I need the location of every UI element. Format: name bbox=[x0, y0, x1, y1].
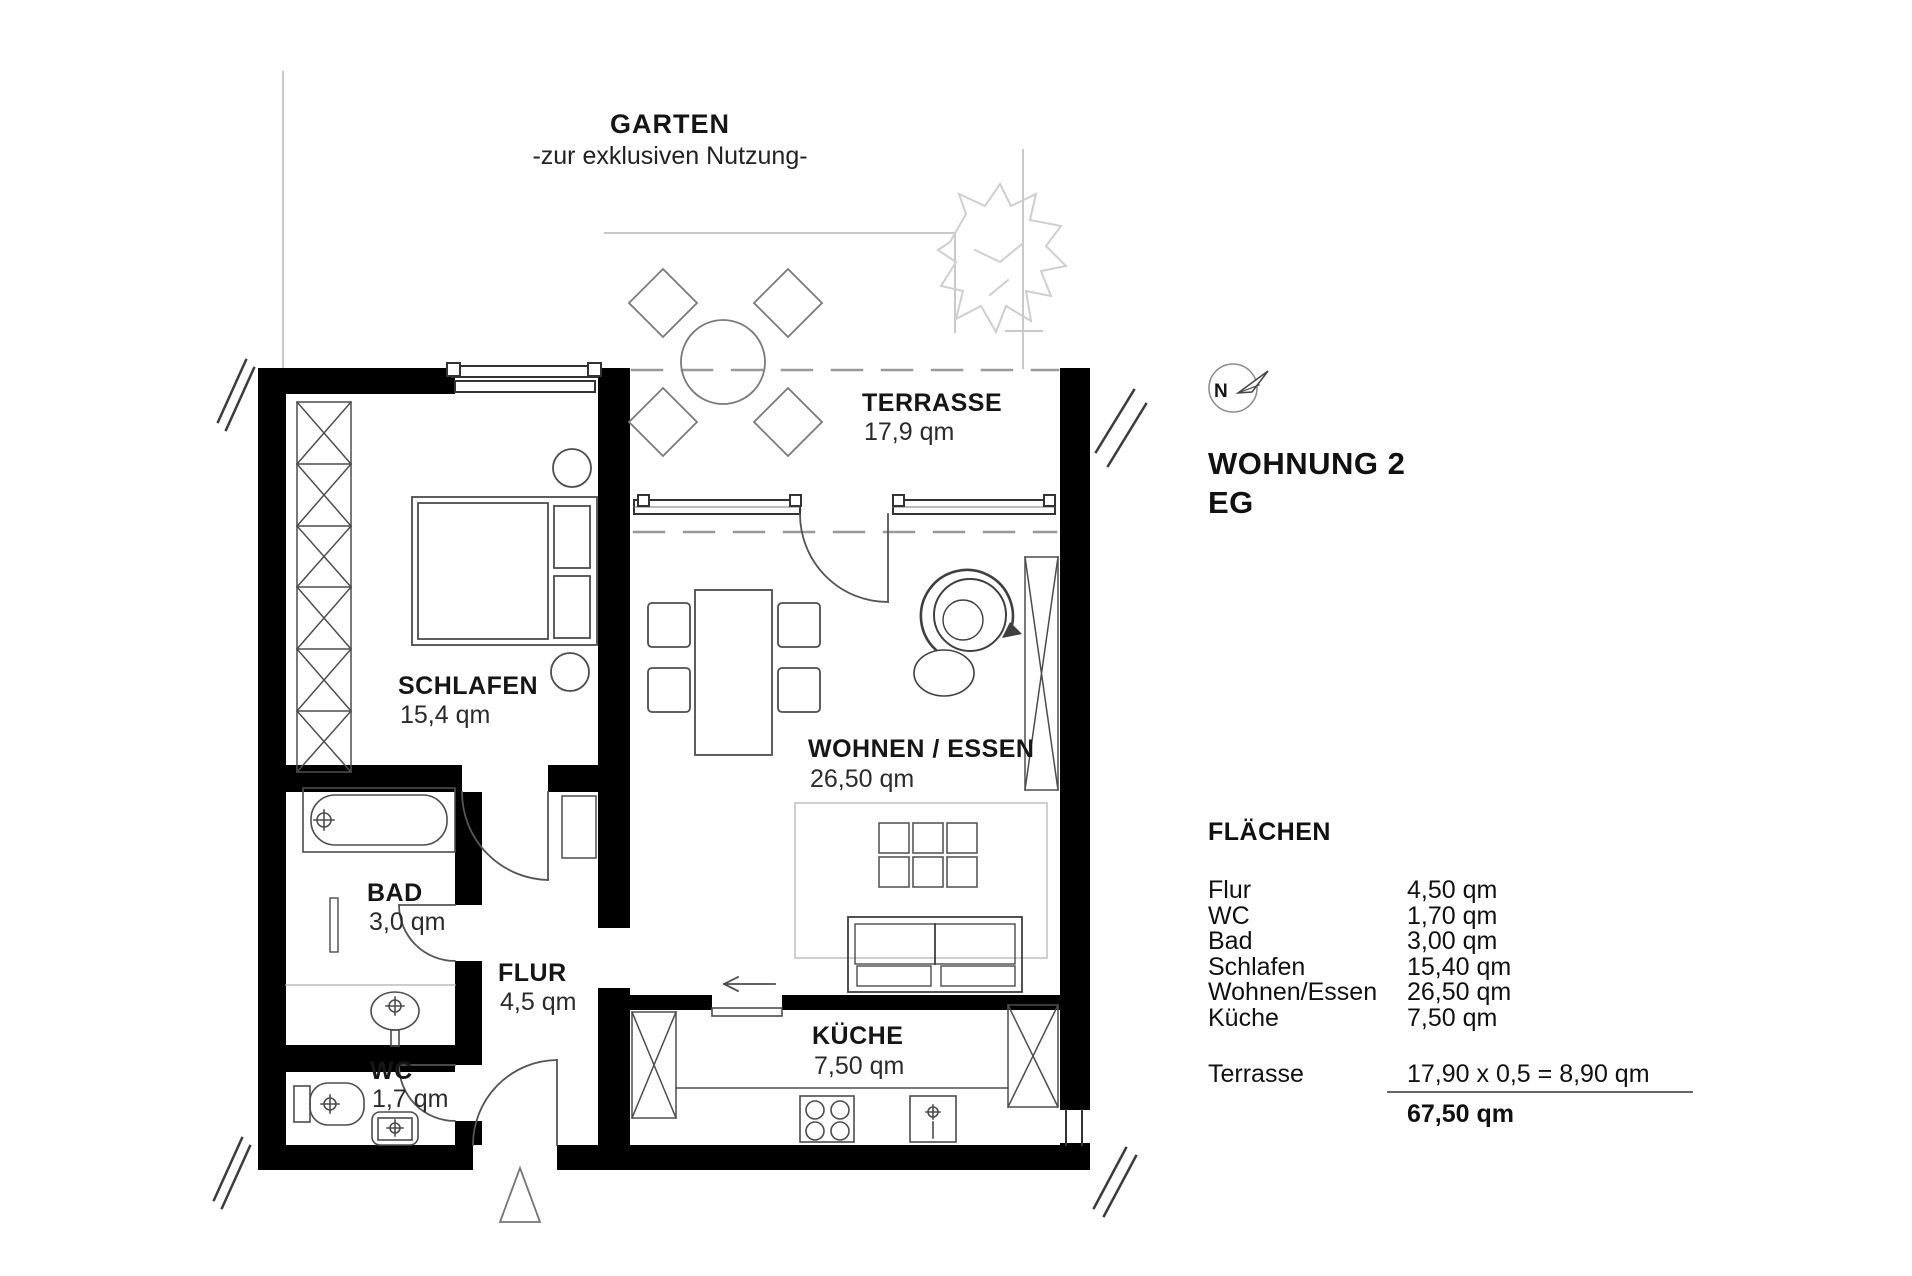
terrace-chair bbox=[754, 388, 822, 456]
areas-table-heading: FLÄCHEN bbox=[1208, 818, 1708, 847]
bath-sink bbox=[371, 992, 419, 1046]
room-area-kueche: 7,50 qm bbox=[814, 1052, 904, 1080]
room-area-terrasse: 17,9 qm bbox=[864, 418, 954, 446]
total-value: 67,50 qm bbox=[1407, 1102, 1708, 1128]
entrance-door bbox=[473, 1060, 557, 1145]
terrace-chair bbox=[754, 269, 822, 337]
nightstand bbox=[551, 653, 589, 691]
sofa bbox=[848, 917, 1022, 992]
towel-radiator bbox=[330, 898, 338, 952]
table-row: Wohnen/Essen 26,50 qm bbox=[1208, 980, 1708, 1006]
row-value: 15,40 qm bbox=[1407, 955, 1708, 981]
garden-subtitle: -zur exklusiven Nutzung- bbox=[532, 142, 807, 170]
bedroom-window bbox=[447, 363, 601, 392]
dining-chair bbox=[778, 603, 820, 647]
bathtub bbox=[303, 788, 455, 852]
bedroom-wardrobe bbox=[297, 402, 351, 772]
table-row: Schlafen 15,40 qm bbox=[1208, 955, 1708, 981]
terrace-dining-set bbox=[629, 269, 822, 456]
dining-table bbox=[695, 590, 772, 755]
room-label-wc: WC bbox=[370, 1057, 413, 1085]
dining-set bbox=[648, 590, 820, 755]
room-area-wc: 1,7 qm bbox=[372, 1085, 448, 1113]
row-value: 1,70 qm bbox=[1407, 904, 1708, 930]
kitchen-counter bbox=[676, 1088, 1008, 1142]
room-label-terrasse: TERRASSE bbox=[862, 389, 1002, 417]
table-row: Küche 7,50 qm bbox=[1208, 1006, 1708, 1032]
dining-chair bbox=[648, 603, 690, 647]
row-label: Bad bbox=[1208, 929, 1407, 955]
row-value: 7,50 qm bbox=[1407, 1006, 1708, 1032]
room-area-wohnen-essen: 26,50 qm bbox=[810, 765, 914, 793]
table-row: WC 1,70 qm bbox=[1208, 904, 1708, 930]
table-row: Bad 3,00 qm bbox=[1208, 929, 1708, 955]
room-label-schlafen: SCHLAFEN bbox=[398, 672, 538, 700]
terrace-chair bbox=[629, 269, 697, 337]
row-label: Schlafen bbox=[1208, 955, 1407, 981]
nightstand bbox=[553, 449, 591, 487]
areas-table: FLÄCHEN Flur 4,50 qm WC 1,70 qm Bad 3,00… bbox=[1208, 818, 1708, 1128]
room-area-schlafen: 15,4 qm bbox=[400, 701, 490, 729]
table-row-terrace: Terrasse 17,90 x 0,5 = 8,90 qm bbox=[1208, 1062, 1708, 1094]
living-room-window-front bbox=[634, 495, 1055, 514]
row-label bbox=[1208, 1102, 1407, 1128]
unit-title: WOHNUNG 2 bbox=[1208, 444, 1405, 483]
room-label-bad: BAD bbox=[367, 879, 423, 907]
row-value: 4,50 qm bbox=[1407, 878, 1708, 904]
coffee-table bbox=[879, 823, 977, 887]
wc-sink bbox=[372, 1112, 418, 1145]
compass: N bbox=[1209, 364, 1268, 412]
row-label: Wohnen/Essen bbox=[1208, 980, 1407, 1006]
bed bbox=[412, 449, 597, 691]
kitchen-pass-through bbox=[712, 977, 782, 1016]
compass-north-label: N bbox=[1214, 381, 1228, 402]
dining-chair bbox=[648, 668, 690, 712]
terrace-chair bbox=[629, 388, 697, 456]
table-row-total: 67,50 qm bbox=[1208, 1102, 1708, 1128]
row-value: 17,90 x 0,5 = 8,90 qm bbox=[1387, 1062, 1693, 1094]
walls bbox=[258, 368, 1090, 1170]
room-area-bad: 3,0 qm bbox=[369, 908, 445, 936]
terrace-table bbox=[681, 320, 765, 404]
kitchen-tall-cabinet bbox=[1008, 1005, 1058, 1107]
row-label: WC bbox=[1208, 904, 1407, 930]
table-row: Flur 4,50 qm bbox=[1208, 878, 1708, 904]
garden-label: GARTEN bbox=[610, 109, 730, 139]
rug bbox=[795, 803, 1047, 958]
room-label-kueche: KÜCHE bbox=[812, 1021, 903, 1050]
unit-floor: EG bbox=[1208, 483, 1405, 522]
room-label-flur: FLUR bbox=[498, 959, 567, 987]
dining-chair bbox=[778, 668, 820, 712]
row-label: Küche bbox=[1208, 1006, 1407, 1032]
kitchen-tall-cabinet bbox=[632, 1012, 676, 1118]
hall-closet bbox=[562, 796, 596, 858]
row-value: 3,00 qm bbox=[1407, 929, 1708, 955]
terrace-door bbox=[800, 514, 888, 602]
row-label: Flur bbox=[1208, 878, 1407, 904]
unit-title-block: WOHNUNG 2 EG bbox=[1208, 444, 1405, 522]
tree-icon bbox=[938, 184, 1066, 332]
kitchen-window bbox=[1066, 1110, 1082, 1145]
entrance-arrow-icon bbox=[500, 1168, 540, 1222]
row-value: 26,50 qm bbox=[1407, 980, 1708, 1006]
row-label: Terrasse bbox=[1208, 1062, 1387, 1094]
room-area-flur: 4,5 qm bbox=[500, 988, 576, 1016]
armchair bbox=[914, 570, 1022, 696]
room-label-wohnen-essen: WOHNEN / ESSEN bbox=[808, 735, 1034, 763]
ottoman bbox=[914, 650, 974, 696]
toilet bbox=[294, 1083, 364, 1125]
